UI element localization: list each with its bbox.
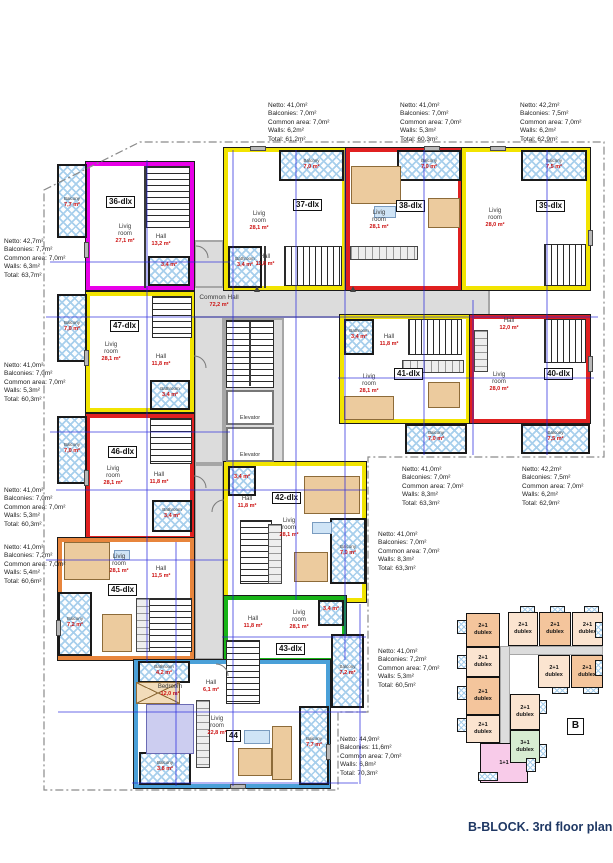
unit-40-balcony-label: Balcony7,5 m²	[521, 430, 590, 443]
spec-line: Walls: 5,3m²	[4, 512, 65, 520]
spec-line: Netto: 44,9m²	[340, 736, 401, 744]
keyplan-unit-type: 2+1	[583, 622, 592, 629]
spec-line: Netto: 42,2m²	[522, 466, 583, 474]
room-area: 28,1 m²	[100, 480, 126, 487]
unit-43-balcony-label: Balcony7,2 m²	[331, 664, 364, 677]
keyplan-balcony	[583, 687, 599, 694]
unit-41-balcony-label: Balcony7,0 m²	[405, 430, 467, 443]
room-area: 11,8 m²	[148, 361, 174, 368]
window-sill	[84, 350, 89, 366]
balcony-area: 7,7 m²	[57, 202, 87, 209]
spec-line: Common area: 7,0m²	[522, 483, 583, 491]
entrance-arrow	[350, 286, 356, 292]
spec-line: Netto: 41,0m²	[4, 362, 65, 370]
unit-45-balcony-label: Balcony7,2 m²	[58, 616, 92, 629]
keyplan-unit-type: 2+1	[478, 689, 487, 696]
spec-line: Walls: 6,3m²	[4, 263, 65, 271]
keyplan-balcony	[552, 687, 568, 694]
spec-line: Total: 60,3m²	[4, 396, 65, 404]
room-area: 28,1 m²	[286, 624, 312, 631]
spec-line: Netto: 42,2m²	[520, 102, 581, 110]
unit-40-spec: Netto: 42,2m²Balconies: 7,5m²Common area…	[522, 466, 583, 508]
keyplan-unit-type: 2+1	[478, 623, 487, 630]
room-area: 28,1 m²	[106, 568, 132, 575]
unit-43-bathroom	[318, 600, 344, 626]
keyplan-unit-type: dublex	[516, 712, 534, 719]
spec-line: Common area: 7,0m²	[378, 548, 439, 556]
unit-44-balcony-right-label: Balcony7,7 m²	[299, 736, 329, 749]
keyplan-unit: 2+1dublex	[508, 612, 538, 646]
unit-41-living-label: Livig room28,1 m²	[356, 374, 382, 395]
spec-line: Common area: 7,0m²	[402, 483, 463, 491]
sofa	[351, 166, 401, 204]
unit-37-stairs	[284, 246, 342, 286]
room-area: 12,0 m²	[150, 691, 190, 698]
unit-36-tag: 36-dlx	[106, 196, 135, 208]
room-word: Livig room	[106, 554, 132, 568]
spec-line: Balconies: 7,0m²	[268, 110, 329, 118]
spec-line: Balconies: 11,6m²	[340, 744, 401, 752]
unit-36-spec: Netto: 42,7m²Balconies: 7,7m²Common area…	[4, 238, 65, 280]
spec-line: Total: 70,3m²	[340, 770, 401, 778]
spec-line: Total: 62,9m²	[522, 500, 583, 508]
spec-line: Walls: 5,3m²	[4, 387, 65, 395]
room-area: 11,5 m²	[148, 573, 174, 580]
keyplan-unit: 2+1dublex	[510, 694, 540, 730]
balcony-area: 7,7 m²	[299, 742, 329, 749]
room-area: 11,8 m²	[240, 623, 266, 630]
unit-39-tag: 39-dlx	[536, 200, 565, 212]
balcony-area: 7,0 m²	[279, 164, 344, 171]
bathroom-area: 3,4 m²	[318, 606, 344, 613]
unit-40-living-label: Livig room28,0 m²	[486, 372, 512, 393]
dining-table	[294, 552, 328, 582]
window-sill	[588, 356, 593, 372]
unit-43-stairs	[226, 640, 260, 704]
spec-line: Common area: 7,0m²	[4, 379, 65, 387]
room-area: 28,1 m²	[356, 388, 382, 395]
room-area: 28,1 m²	[246, 225, 272, 232]
kitchen-counter	[350, 246, 418, 260]
room-area: 11,8 m²	[376, 341, 402, 348]
unit-42-living-label: Livig room28,1 m²	[276, 518, 302, 539]
room-word: Livig room	[286, 610, 312, 624]
balcony-area: 7,0 m²	[330, 550, 366, 557]
room-area: 27,1 m²	[112, 238, 138, 245]
kitchen-counter	[136, 598, 150, 652]
elevator-label: Elevator	[240, 415, 260, 421]
unit-36-stairs	[146, 166, 190, 228]
room-area: 28,1 m²	[98, 356, 124, 363]
unit-42-hall-label: Hall11,8 m²	[234, 496, 260, 510]
keyplan-balcony	[457, 655, 467, 669]
spec-line: Netto: 41,0m²	[400, 102, 461, 110]
unit-43-tag: 43-dlx	[276, 643, 305, 655]
room-area: 11,8 m²	[146, 479, 172, 486]
unit-41-hall-label: Hall11,8 m²	[376, 334, 402, 348]
keyplan-unit-type: dublex	[474, 696, 492, 703]
room-area: 13,2 m²	[148, 241, 174, 248]
dining-table	[238, 748, 272, 776]
unit-47-balcony-label: Balcony7,0 m²	[57, 320, 87, 333]
balcony-area: 7,0 m²	[397, 164, 461, 171]
keyplan-unit-type: dublex	[578, 672, 596, 679]
room-word: Livig room	[366, 210, 392, 224]
room-word: Livig room	[482, 208, 508, 222]
keyplan-unit-type: 1+1	[499, 760, 508, 767]
keyplan-unit-type: 2+1	[550, 622, 559, 629]
room-word: Livig room	[276, 518, 302, 532]
unit-42-bathroom	[228, 466, 256, 496]
spec-line: Walls: 8,3m²	[378, 556, 439, 564]
unit-41-stairs	[408, 319, 462, 355]
keyplan-unit-type: dublex	[516, 747, 534, 754]
spec-line: Walls: 8,3m²	[402, 491, 463, 499]
keyplan-unit: 2+1dublex	[466, 613, 500, 647]
unit-47-spec: Netto: 41,0m²Balconies: 7,0m²Common area…	[4, 362, 65, 404]
dining-table	[428, 382, 460, 408]
unit-46-balcony-label: Balcony7,0 m²	[57, 442, 87, 455]
unit-45-living-label: Livig room28,1 m²	[106, 554, 132, 575]
unit-37-balcony-label: Balcony7,0 m²	[279, 158, 344, 171]
unit-36-living-label: Livig room27,1 m²	[112, 224, 138, 245]
unit-39-spec: Netto: 42,2m²Balconies: 7,5m²Common area…	[520, 102, 581, 144]
keyplan-unit-type: 2+1	[478, 722, 487, 729]
unit-38-tag: 38-dlx	[396, 200, 425, 212]
unit-45-stairs	[148, 598, 192, 652]
keyplan-unit-type: 2+1	[549, 665, 558, 672]
unit-40-tag: 40-dlx	[544, 368, 573, 380]
bathroom-area: 3,4 m²	[148, 262, 190, 269]
unit-46-tag: 46-dlx	[108, 446, 137, 458]
keyplan-balcony	[595, 660, 603, 676]
elevator-label: Elevator	[240, 452, 260, 458]
rug	[312, 522, 332, 534]
spec-line: Walls: 5,3m²	[378, 673, 439, 681]
room-area: 12,0 m²	[496, 325, 522, 332]
unit-41-spec: Netto: 41,0m²Balconies: 7,0m²Common area…	[402, 466, 463, 508]
spec-line: Netto: 41,0m²	[4, 487, 65, 495]
unit-36-balcony-label: Balcony7,7 m²	[57, 196, 87, 209]
spec-line: Balconies: 7,0m²	[4, 370, 65, 378]
spec-line: Common area: 7,0m²	[4, 255, 65, 263]
unit-43-living-label: Livig room28,1 m²	[286, 610, 312, 631]
unit-38-spec: Netto: 41,0m²Balconies: 7,0m²Common area…	[400, 102, 461, 144]
spec-line: Netto: 41,0m²	[378, 531, 439, 539]
room-word: Livig room	[486, 372, 512, 386]
unit-38-balcony-label: Balcony7,0 m²	[397, 158, 461, 171]
keyplan-balcony	[550, 606, 565, 613]
unit-46-hall-label: Hall11,8 m²	[146, 472, 172, 486]
room-word: Livig room	[356, 374, 382, 388]
unit-47-living-label: Livig room28,1 m²	[98, 342, 124, 363]
room-word: Livig room	[100, 466, 126, 480]
room-area: 72,2 m²	[196, 302, 242, 309]
unit-38-living-label: Livig room28,1 m²	[366, 210, 392, 231]
spec-line: Balconies: 7,0m²	[402, 474, 463, 482]
floor-plan-page: Elevator Elevator	[0, 0, 613, 863]
spec-line: Total: 60,6m²	[4, 578, 65, 586]
room-area: 28,1 m²	[366, 224, 392, 231]
keyplan-balcony	[539, 700, 547, 714]
room-word: Livig room	[112, 224, 138, 238]
unit-43-hall-label: Hall11,8 m²	[240, 616, 266, 630]
keyplan-unit: 2+1dublex	[538, 655, 570, 688]
unit-47-hall-label: Hall11,8 m²	[148, 354, 174, 368]
balcony-area: 7,5 m²	[521, 436, 590, 443]
unit-46-spec: Netto: 41,0m²Balconies: 7,0m²Common area…	[4, 487, 65, 529]
sofa	[272, 726, 292, 780]
spec-line: Total: 60,3m²	[4, 521, 65, 529]
keyplan-unit-type: 3+1	[520, 740, 529, 747]
spec-line: Balconies: 7,0m²	[378, 539, 439, 547]
keyplan-balcony	[539, 744, 547, 758]
unit-42-balcony-label: Balcony7,0 m²	[330, 544, 366, 557]
spec-line: Common area: 7,0m²	[268, 119, 329, 127]
dining-table	[428, 198, 460, 228]
keyplan-unit: 2+1dublex	[466, 677, 500, 715]
unit-37-tag: 37-dlx	[293, 199, 322, 211]
room-word: Livig room	[98, 342, 124, 356]
spec-line: Balconies: 7,2m²	[378, 656, 439, 664]
spec-line: Common area: 7,0m²	[4, 561, 65, 569]
window-sill	[250, 146, 266, 151]
balcony-area: 7,0 m²	[405, 436, 467, 443]
spec-line: Common area: 7,0m²	[4, 504, 65, 512]
room-area: 22,8 m²	[204, 730, 230, 737]
unit-45-hall-label: Hall11,5 m²	[148, 566, 174, 580]
spec-line: Netto: 41,0m²	[378, 648, 439, 656]
keyplan-unit-type: dublex	[579, 629, 597, 636]
bathroom-area: 3,4 m²	[228, 262, 262, 269]
dining-table	[102, 614, 132, 652]
balcony-area: 7,0 m²	[57, 448, 87, 455]
spec-line: Walls: 5,4m²	[4, 569, 65, 577]
spec-line: Total: 61,2m²	[268, 136, 329, 144]
unit-43-bathroom-label: 3,4 m²	[318, 606, 344, 613]
corridor-upper	[194, 240, 224, 464]
unit-44-living-label: Livig room22,8 m²	[204, 716, 230, 737]
unit-46-bathroom-label: Bathroom3,4 m²	[152, 507, 192, 520]
room-area: 6,1 m²	[198, 687, 224, 694]
balcony-area: 3,8 m²	[139, 766, 191, 773]
corridor-lower	[194, 464, 224, 660]
room-area: 11,8 m²	[234, 503, 260, 510]
sofa	[304, 476, 360, 514]
unit-41-tag: 41-dlx	[394, 368, 423, 380]
keyplan-balcony	[520, 606, 535, 613]
bathroom-area: 3,4 m²	[228, 474, 256, 481]
unit-44-hall-label: Hall6,1 m²	[198, 680, 224, 694]
unit-44-spec: Netto: 44,9m²Balconies: 11,6m²Common are…	[340, 736, 401, 778]
unit-44-bathroom-label: Bathroom4,2 m²	[138, 664, 190, 677]
unit-44-balcony-left-label: Balcony3,8 m²	[139, 760, 191, 773]
spec-line: Netto: 41,0m²	[402, 466, 463, 474]
spec-line: Walls: 6,2m²	[268, 127, 329, 135]
unit-45-spec: Netto: 41,0m²Balconies: 7,2m²Common area…	[4, 544, 65, 586]
unit-41-bathroom-label: Bathroom3,4 m²	[344, 328, 374, 341]
balcony-area: 7,0 m²	[57, 326, 87, 333]
unit-36-bathroom	[148, 256, 190, 286]
keyplan-hall-horizontal	[497, 646, 603, 655]
spec-line: Total: 60,5m²	[378, 682, 439, 690]
balcony-area: 7,2 m²	[58, 622, 92, 629]
spec-line: Balconies: 7,5m²	[520, 110, 581, 118]
unit-42-tag: 42-dlx	[272, 492, 301, 504]
spec-line: Balconies: 7,2m²	[4, 552, 65, 560]
unit-39-balcony-label: Balcony7,5 m²	[521, 158, 587, 171]
bathroom-area: 4,2 m²	[138, 670, 190, 677]
window-sill	[84, 242, 89, 258]
bathroom-area: 3,4 m²	[152, 513, 192, 520]
keyplan-block-label: B	[567, 718, 584, 735]
window-sill	[424, 146, 440, 151]
keyplan-balcony	[526, 758, 536, 772]
partition	[144, 166, 146, 288]
unit-44-bedroom-label: Bedroom12,0 m²	[150, 684, 190, 698]
unit-36-bathroom-label: 3,4 m²	[148, 262, 190, 269]
room-word: Common Hall	[196, 294, 242, 302]
spec-line: Total: 62,9m²	[520, 136, 581, 144]
window-sill	[230, 784, 246, 789]
spec-line: Balconies: 7,0m²	[4, 495, 65, 503]
bathroom-area: 3,4 m²	[344, 334, 374, 341]
page-title: B-BLOCK. 3rd floor plan	[468, 820, 612, 834]
spec-line: Balconies: 7,7m²	[4, 246, 65, 254]
unit-40-hall-label: Hall12,0 m²	[496, 318, 522, 332]
bed	[146, 704, 194, 754]
unit-46-stairs	[150, 418, 192, 464]
keyplan-unit: 2+1dublex	[466, 715, 500, 743]
unit-45-tag: 45-dlx	[108, 584, 137, 596]
unit-42-spec: Netto: 41,0m²Balconies: 7,0m²Common area…	[378, 531, 439, 573]
keyplan-unit-type: dublex	[474, 729, 492, 736]
spec-line: Netto: 41,0m²	[4, 544, 65, 552]
spec-line: Common area: 7,0m²	[378, 665, 439, 673]
entrance-arrow	[254, 286, 260, 292]
unit-43-spec: Netto: 41,0m²Balconies: 7,2m²Common area…	[378, 648, 439, 690]
unit-36-hall-label: Hall13,2 m²	[148, 234, 174, 248]
unit-47-bathroom-label: Bathroom3,4 m²	[150, 386, 190, 399]
spec-line: Common area: 7,0m²	[400, 119, 461, 127]
keyplan-unit: 2+1dublex	[539, 612, 571, 646]
keyplan-balcony	[457, 620, 467, 634]
balcony-area: 7,2 m²	[331, 670, 364, 677]
spec-line: Walls: 6,8m²	[340, 761, 401, 769]
keyplan-unit-type: dublex	[545, 672, 563, 679]
keyplan-balcony	[595, 622, 603, 638]
spec-line: Walls: 6,2m²	[520, 127, 581, 135]
room-area: 28,1 m²	[276, 532, 302, 539]
room-word: Livig room	[246, 211, 272, 225]
elevator-1: Elevator	[226, 390, 274, 425]
spec-line: Walls: 6,2m²	[522, 491, 583, 499]
spec-line: Common area: 7,0m²	[520, 119, 581, 127]
keyplan-unit-type: dublex	[474, 662, 492, 669]
stair-rail	[249, 322, 251, 386]
window-sill	[84, 470, 89, 486]
spec-line: Total: 60,3m²	[400, 136, 461, 144]
common-hall-label: Common Hall72,2 m²	[196, 294, 242, 308]
unit-42-bathroom-label: 3,4 m²	[228, 474, 256, 481]
unit-47-stairs	[152, 296, 192, 338]
unit-37-living-label: Livig room28,1 m²	[246, 211, 272, 232]
elevator-2: Elevator	[226, 427, 274, 462]
spec-line: Total: 63,3m²	[378, 565, 439, 573]
keyplan-balcony	[457, 718, 467, 732]
spec-line: Balconies: 7,5m²	[522, 474, 583, 482]
unit-37-spec: Netto: 41,0m²Balconies: 7,0m²Common area…	[268, 102, 329, 144]
keyplan-unit-type: 2+1	[478, 655, 487, 662]
window-sill	[588, 230, 593, 246]
keyplan-unit-type: 2+1	[582, 665, 591, 672]
room-area: 28,0 m²	[482, 222, 508, 229]
keyplan-unit-type: 2+1	[518, 622, 527, 629]
spec-line: Balconies: 7,0m²	[400, 110, 461, 118]
spec-line: Common area: 7,0m²	[340, 753, 401, 761]
bathroom-area: 3,4 m²	[150, 392, 190, 399]
spec-line: Netto: 42,7m²	[4, 238, 65, 246]
window-sill	[490, 146, 506, 151]
sofa	[344, 396, 394, 420]
room-word: Livig room	[204, 716, 230, 730]
keyplan-unit-type: dublex	[514, 629, 532, 636]
keyplan-balcony	[584, 606, 599, 613]
keyplan-unit-type: dublex	[474, 630, 492, 637]
spec-line: Netto: 41,0m²	[268, 102, 329, 110]
balcony-area: 7,5 m²	[521, 164, 587, 171]
keyplan-balcony	[478, 772, 498, 781]
keyplan-balcony	[457, 686, 467, 700]
kitchen-counter	[474, 330, 488, 372]
spec-line: Walls: 5,3m²	[400, 127, 461, 135]
unit-37-bathroom-label: Bathroom3,4 m²	[228, 256, 262, 269]
unit-39-living-label: Livig room28,0 m²	[482, 208, 508, 229]
rug	[244, 730, 270, 744]
keyplan-unit-type: dublex	[546, 629, 564, 636]
keyplan-unit: 2+1dublex	[466, 647, 500, 677]
room-area: 28,0 m²	[486, 386, 512, 393]
unit-46-living-label: Livig room28,1 m²	[100, 466, 126, 487]
keyplan-hall-vertical	[500, 646, 510, 750]
unit-40-stairs	[544, 319, 586, 363]
spec-line: Total: 63,7m²	[4, 272, 65, 280]
unit-39-stairs	[544, 244, 586, 286]
sofa	[64, 542, 110, 580]
spec-line: Total: 63,3m²	[402, 500, 463, 508]
keyplan-unit-type: 2+1	[520, 705, 529, 712]
unit-47-tag: 47-dlx	[110, 320, 139, 332]
